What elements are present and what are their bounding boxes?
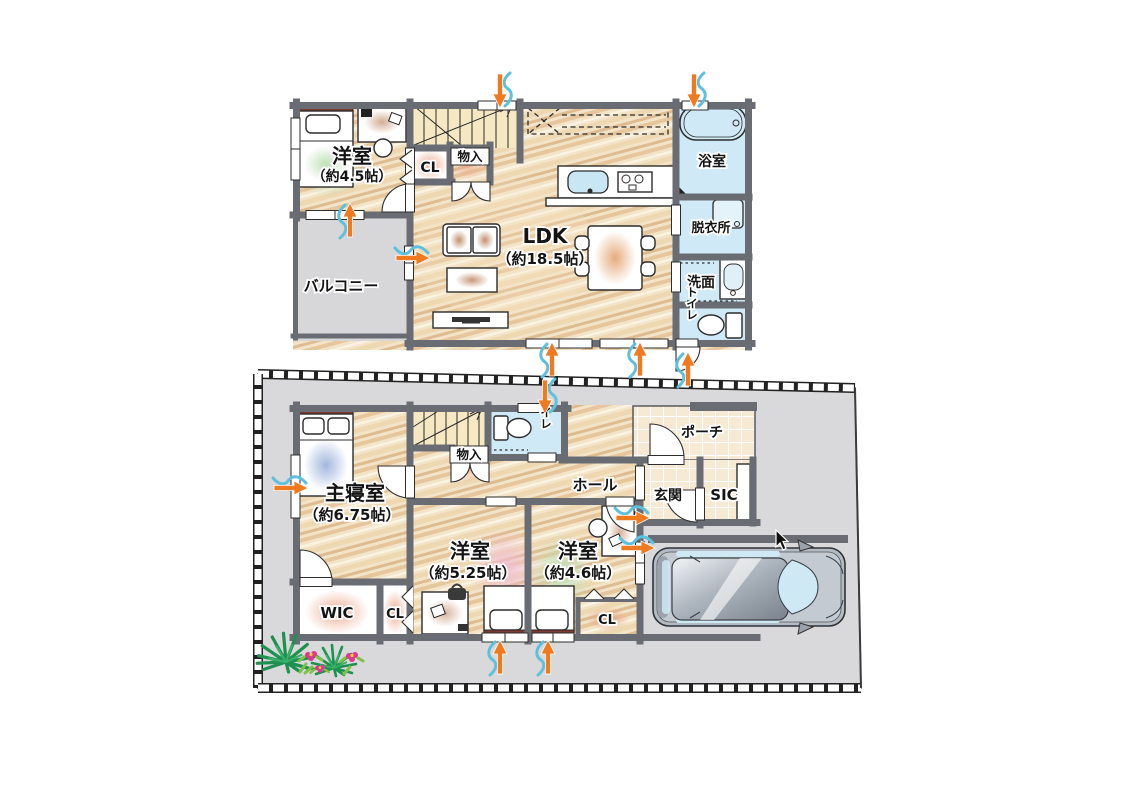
label-toilet-2f: トイレ [685,286,699,321]
floorplan-image: 洋室 （約4.5帖） CL 物入 LDK （約18.5帖） バルコニー 浴室 脱… [0,0,1131,800]
kitchen-counter [546,166,676,206]
bed-46 [530,586,574,636]
label-balcony: バルコニー [304,277,379,295]
label-bathroom: 浴室 [698,153,726,170]
label-monoire-2f: 物入 [457,149,483,164]
label-ldk: LDK [523,224,569,248]
label-master-size: （約6.75帖） [303,506,400,524]
label-master: 主寝室 [325,481,385,505]
label-monoire-1f-box: 物入 [450,446,488,463]
label-yoshitsu525: 洋室 [450,539,490,563]
label-yoshitsu45-size: （約4.5帖） [312,168,393,185]
label-hall: ホール [572,476,617,494]
label-wic: WIC [320,604,353,622]
floorplan-svg: 洋室 （約4.5帖） CL 物入 LDK （約18.5帖） バルコニー 浴室 脱… [0,0,1131,800]
label-dressing: 脱衣所 [691,220,730,236]
label-yoshitsu46: 洋室 [558,539,598,563]
bed-525 [484,586,528,636]
label-monoire-1f: 物入 [456,447,482,462]
label-yoshitsu525-size: （約5.25帖） [419,564,516,582]
label-closet-2f: CL [420,160,439,176]
desk-525 [422,585,468,635]
label-yoshitsu46-size: （約4.6帖） [535,564,622,582]
bathtub [680,106,746,140]
car-side-glass [676,551,780,557]
label-yoshitsu45: 洋室 [332,144,372,168]
carport-wall [648,535,848,543]
label-sic: SIC [710,486,737,504]
tv-board [433,312,508,328]
label-ldk-size: （約18.5帖） [496,250,593,268]
porch-cap-wall [690,402,757,411]
label-closet1: CL [386,607,404,622]
floor2-plan: 洋室 （約4.5帖） CL 物入 LDK （約18.5帖） バルコニー 浴室 脱… [291,101,752,371]
car [653,540,845,634]
vanity-sink [720,259,747,299]
sofa [443,224,500,256]
label-monoire-2f-box: 物入 [451,148,489,165]
coffee-table [447,268,497,292]
car-rear-window [662,560,670,614]
label-closet2: CL [598,613,616,628]
label-entrance: 玄関 [654,487,682,504]
sic-shelf [737,464,750,520]
label-porch: ポーチ [681,424,723,441]
